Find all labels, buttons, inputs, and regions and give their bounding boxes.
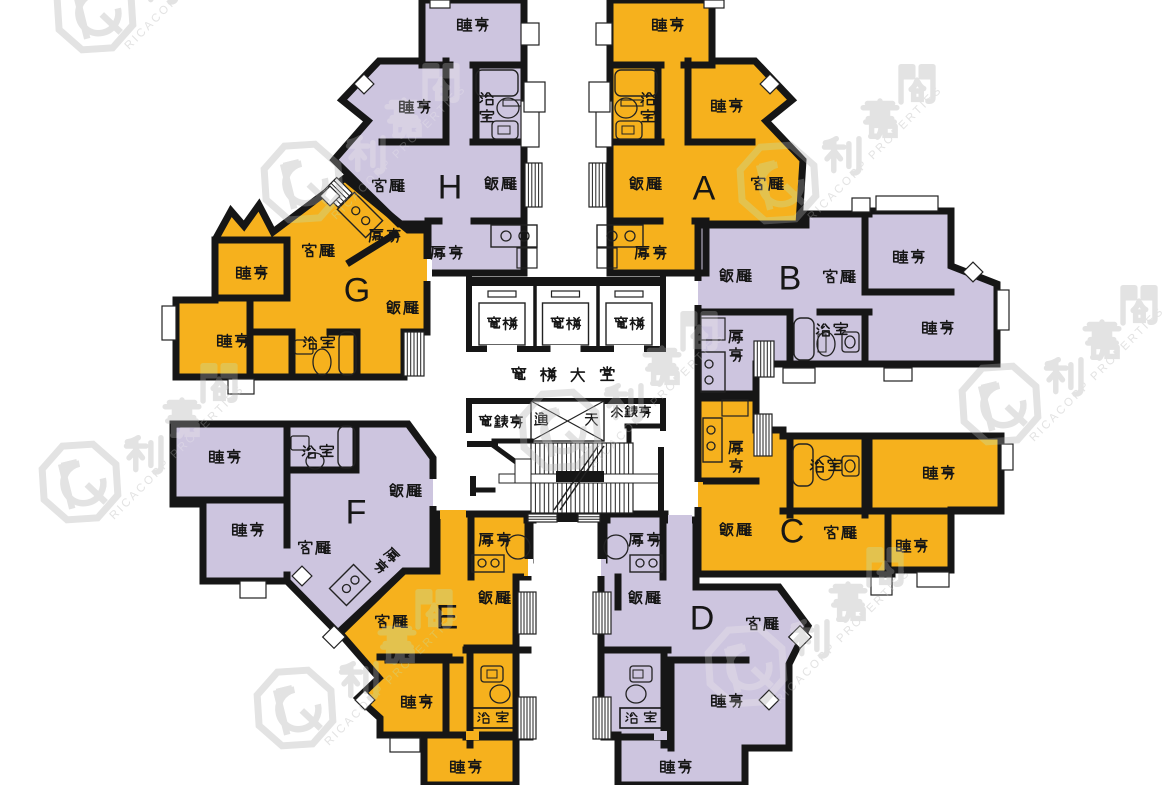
- svg-text:B: B: [779, 260, 802, 298]
- svg-text:F: F: [346, 494, 367, 532]
- svg-text:D: D: [690, 600, 715, 638]
- svg-text:H: H: [438, 169, 463, 207]
- svg-text:C: C: [780, 513, 805, 551]
- svg-text:A: A: [693, 170, 716, 208]
- svg-text:G: G: [344, 272, 370, 310]
